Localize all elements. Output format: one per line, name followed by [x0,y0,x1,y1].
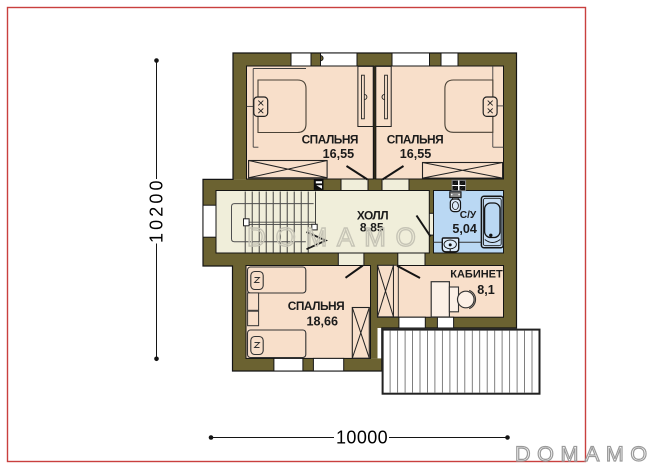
svg-text:СПАЛЬНЯ: СПАЛЬНЯ [387,133,443,147]
svg-text:СПАЛЬНЯ: СПАЛЬНЯ [288,299,344,313]
svg-text:5,04: 5,04 [452,222,477,236]
svg-text:18,66: 18,66 [307,314,339,328]
svg-text:DOMAMO: DOMAMO [515,442,654,466]
svg-text:КАБИНЕТ: КАБИНЕТ [450,269,503,281]
svg-text:СПАЛЬНЯ: СПАЛЬНЯ [302,133,358,147]
svg-text:10000: 10000 [336,428,388,448]
svg-text:DOMAMO: DOMAMO [247,222,426,252]
svg-text:16,55: 16,55 [400,147,432,161]
svg-text:8,1: 8,1 [477,283,495,297]
svg-text:16,55: 16,55 [323,147,355,161]
svg-text:10200: 10200 [147,177,167,243]
svg-text:С/У: С/У [460,210,477,221]
